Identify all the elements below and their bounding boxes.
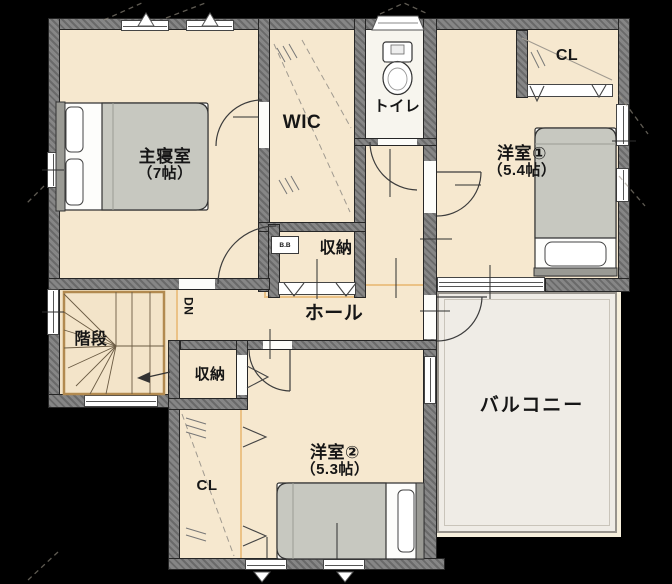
window [84,395,158,407]
room-size: （7帖） [100,166,230,182]
window [186,20,234,31]
door-opening [263,341,292,349]
stairs-dn-label: DN [182,289,195,323]
wall [48,18,60,408]
room-size: （5.4帖） [452,163,592,179]
room-label-hall: ホール [284,304,384,324]
room-label-bedroom1: 洋室① （5.4帖） [452,145,592,179]
window [376,19,420,30]
room-name: 主寝室 [100,148,230,166]
room-label-closet2: CL [187,478,227,494]
window [424,356,436,404]
wall [618,18,630,292]
window [245,559,287,570]
room-label-stairs: 階段 [61,332,121,349]
room-label-balcony: バルコニー [452,396,612,416]
wall [168,558,445,570]
door-opening [424,161,436,213]
bifold-door-closet1 [527,84,613,97]
window [323,559,365,570]
wall [48,278,270,290]
cabinet-bb: B.B [271,236,299,254]
window [616,168,629,202]
door-opening [424,295,436,339]
wall [545,278,630,292]
window [47,152,59,188]
room-label-storage-top: 収納 [296,241,376,258]
room-toilet [360,24,431,146]
window-balcony-slider [437,277,545,292]
wall [180,340,437,350]
bifold-door-storage-top [278,282,356,295]
window [47,289,59,335]
room-name: 洋室① [452,145,592,163]
room-label-wic: WIC [272,113,332,133]
room-size: （5.3帖） [265,462,405,478]
room-label-bedroom2: 洋室② （5.3帖） [265,444,405,478]
room-name: 洋室② [265,444,405,462]
room-label-storage-bottom: 収納 [175,367,245,383]
room-label-closet1: CL [547,48,587,65]
floor-plan: B.B [0,0,672,584]
room-label-toilet: トイレ [367,99,427,115]
window [121,20,169,31]
cabinet-bb-label: B.B [279,242,290,249]
window [616,104,629,146]
door-opening [259,102,269,148]
door-opening [179,279,215,289]
door-opening [378,139,417,145]
room-label-master-bedroom: 主寝室 （7帖） [100,148,230,182]
wall [168,398,248,410]
